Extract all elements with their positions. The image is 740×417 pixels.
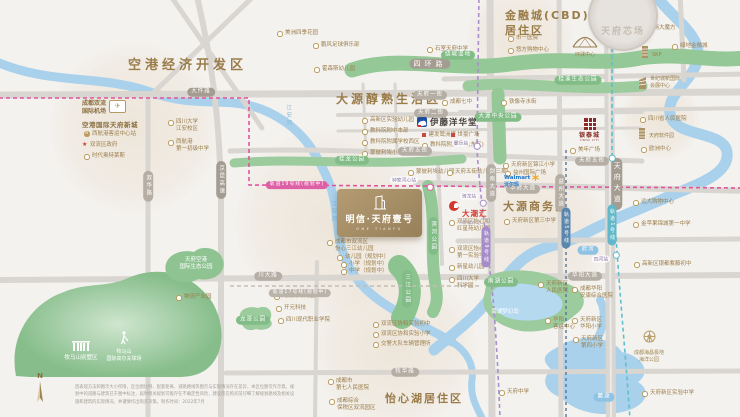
dachaohui-label: 大潮汇	[462, 209, 488, 218]
walmart-spark-icon	[532, 174, 539, 181]
compass-needle-icon	[32, 380, 48, 406]
walmart-label-cn: 沃尔玛	[504, 181, 539, 188]
yintai-city-label: 银泰城	[579, 130, 600, 139]
yintai-city-icon	[584, 118, 596, 130]
property-name: 明信·天府壹号	[346, 212, 414, 225]
golf-landmark: 牧马山 国际高尔夫球场	[106, 330, 142, 362]
dachaohui-icon	[449, 201, 459, 211]
ito-yokado-landmark: 伊藤洋华堂	[417, 116, 478, 128]
golfer-icon	[118, 331, 130, 345]
software-park-label: 天府软件园	[649, 133, 674, 140]
dachaohui-subtitle: 购物中心	[462, 220, 488, 226]
expo-center-landmark: 世纪城新国际 会展中心	[638, 76, 680, 89]
brand-stamp: 天府芯场	[588, 0, 658, 51]
airplane-icon: ✈	[109, 100, 126, 113]
haichang-label: 成都海昌极地 海洋公园	[630, 350, 668, 364]
skp-building-icon	[641, 45, 649, 58]
software-park-landmark: 天府软件园	[638, 127, 674, 139]
dachaohui-landmark: 大潮汇 购物中心	[449, 201, 488, 226]
haichang-landmark: 成都海昌极地 海洋公园	[630, 329, 668, 364]
villa-landmark: 牧马山别墅区	[62, 336, 100, 362]
expo-building-icon	[638, 76, 647, 89]
software-park-icon	[638, 127, 646, 139]
skp-landmark: SKP	[641, 45, 661, 58]
walmart-label-en: Walmart	[504, 175, 530, 181]
ito-yokado-icon	[417, 117, 427, 127]
villa-label: 牧马山别墅区	[62, 355, 100, 362]
golf-label: 牧马山 国际高尔夫球场	[106, 349, 142, 362]
yintai-city-landmark: 银泰城 YINTAI CITY	[579, 118, 600, 142]
property-logo-icon	[374, 195, 386, 210]
compass: N	[28, 372, 52, 410]
airport-label: 成都双流 国际机场	[82, 100, 106, 115]
location-map: 空港经济开发区大源醇熟生活区金融城(CBD)居住区大源商务区怡心湖居住区西航港客…	[0, 0, 740, 417]
villa-gate-icon	[72, 340, 90, 351]
global-center-label: 环球中心	[572, 52, 598, 59]
property-card: 明信·天府壹号 ONE TIANFU	[337, 189, 422, 237]
airport-landmark: 成都双流 国际机场 ✈	[82, 100, 126, 119]
disclaimer-text: 因表现方法和图示大小所限，区位图比例、配套距离、道路路线等图示与实际情况存在差异…	[75, 384, 495, 406]
walmart-landmark: Walmart 沃尔玛	[504, 174, 539, 188]
ito-yokado-label: 伊藤洋华堂	[430, 116, 478, 128]
skp-label: SKP	[652, 52, 661, 59]
expo-center-label: 世纪城新国际 会展中心	[650, 76, 680, 89]
global-center-icon	[572, 36, 598, 48]
ferris-wheel-icon	[641, 329, 658, 346]
map-landmarks: 成都双流 国际机场 ✈ 空港国际天府新城 伊藤洋华堂 大潮汇 购物中心 银泰城 …	[0, 0, 740, 417]
airport-city-label: 空港国际天府新城	[82, 119, 138, 129]
yintai-city-en: YINTAI CITY	[579, 139, 600, 142]
property-name-en: ONE TIANFU	[356, 227, 402, 231]
